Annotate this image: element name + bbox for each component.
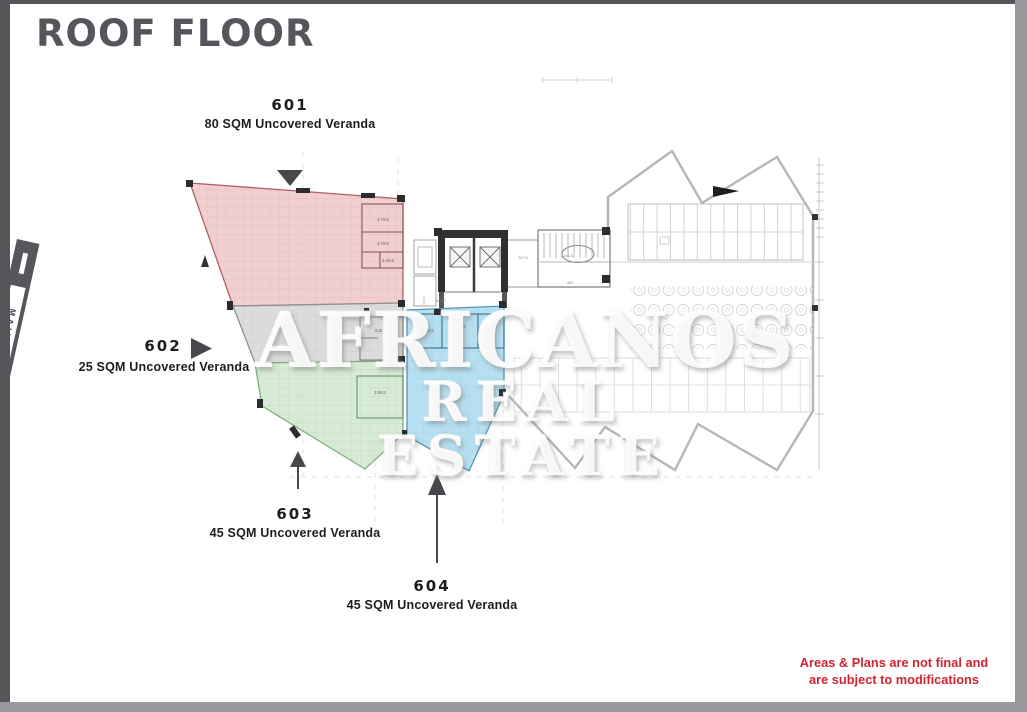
- unit-602-label-number: 602: [128, 337, 198, 355]
- disclaimer-line1: Areas & Plans are not final and: [788, 655, 1000, 672]
- frame-border-left: [0, 0, 10, 712]
- unit-604-label: 604 45 SQM Uncovered Veranda: [332, 577, 532, 612]
- unit-602-region: [233, 303, 403, 363]
- room-area-label: 4.9m2: [422, 328, 434, 333]
- frame-border-right: [1015, 0, 1027, 712]
- unit-number: 601: [190, 96, 390, 114]
- unit-area: 45 SQM Uncovered Veranda: [195, 526, 395, 540]
- unit-number: 602: [128, 337, 198, 355]
- dimension-label: 181.5: [563, 254, 573, 258]
- planter-circles: [630, 286, 814, 349]
- unit-603-label: 603 45 SQM Uncovered Veranda: [195, 505, 395, 540]
- unit-601-arrow: [277, 170, 303, 186]
- room-area-label: 3.5m2: [374, 390, 386, 395]
- unit-number: 604: [332, 577, 532, 595]
- unit-604-arrow: [428, 474, 446, 563]
- page-title: ROOF FLOOR: [36, 12, 315, 55]
- road-lane-marking: [19, 253, 28, 275]
- dimension-strip: [815, 158, 824, 470]
- room-area-label: 4.7m2: [377, 217, 389, 222]
- disclaimer-line2: are subject to modifications: [788, 672, 1000, 689]
- elevator-core: [438, 230, 538, 308]
- unit-area: 80 SQM Uncovered Veranda: [190, 117, 390, 131]
- unit-601-region: [190, 183, 403, 306]
- unit-number: 603: [195, 505, 395, 523]
- unit-601-label: 601 80 SQM Uncovered Veranda: [190, 96, 390, 131]
- level-marker-label: +40.70: [434, 299, 445, 303]
- frame-border-top: [0, 0, 1027, 4]
- room-area-label: 4.7m2: [377, 241, 389, 246]
- top-dimension-line: [543, 77, 612, 83]
- roof-outline: [509, 151, 824, 470]
- floorplan-page: 4.7m2 4.7m2 3.4m2 8.2m2 3.5m2 4.9m2 5.4m…: [0, 0, 1027, 712]
- unit-603-arrow: [290, 451, 306, 489]
- staircase: [538, 230, 610, 287]
- unit-603-region: [255, 361, 403, 469]
- unit-602-label-area: 25 SQM Uncovered Veranda: [68, 357, 260, 374]
- disclaimer: Areas & Plans are not final and are subj…: [788, 655, 1000, 688]
- room-area-label: 3.9m2: [485, 324, 497, 329]
- unit-area: 45 SQM Uncovered Veranda: [332, 598, 532, 612]
- annex-rooms: [414, 240, 436, 306]
- room-area-label: 5.4m2: [454, 324, 466, 329]
- unit-area: 25 SQM Uncovered Veranda: [68, 360, 260, 374]
- room-area-label: 8.2m2: [375, 328, 387, 333]
- room-area-label: 3.4m2: [382, 258, 394, 263]
- dimension-label: 307.5: [518, 256, 528, 260]
- dimension-label: 460: [567, 281, 573, 285]
- frame-border-bottom: [0, 702, 1027, 712]
